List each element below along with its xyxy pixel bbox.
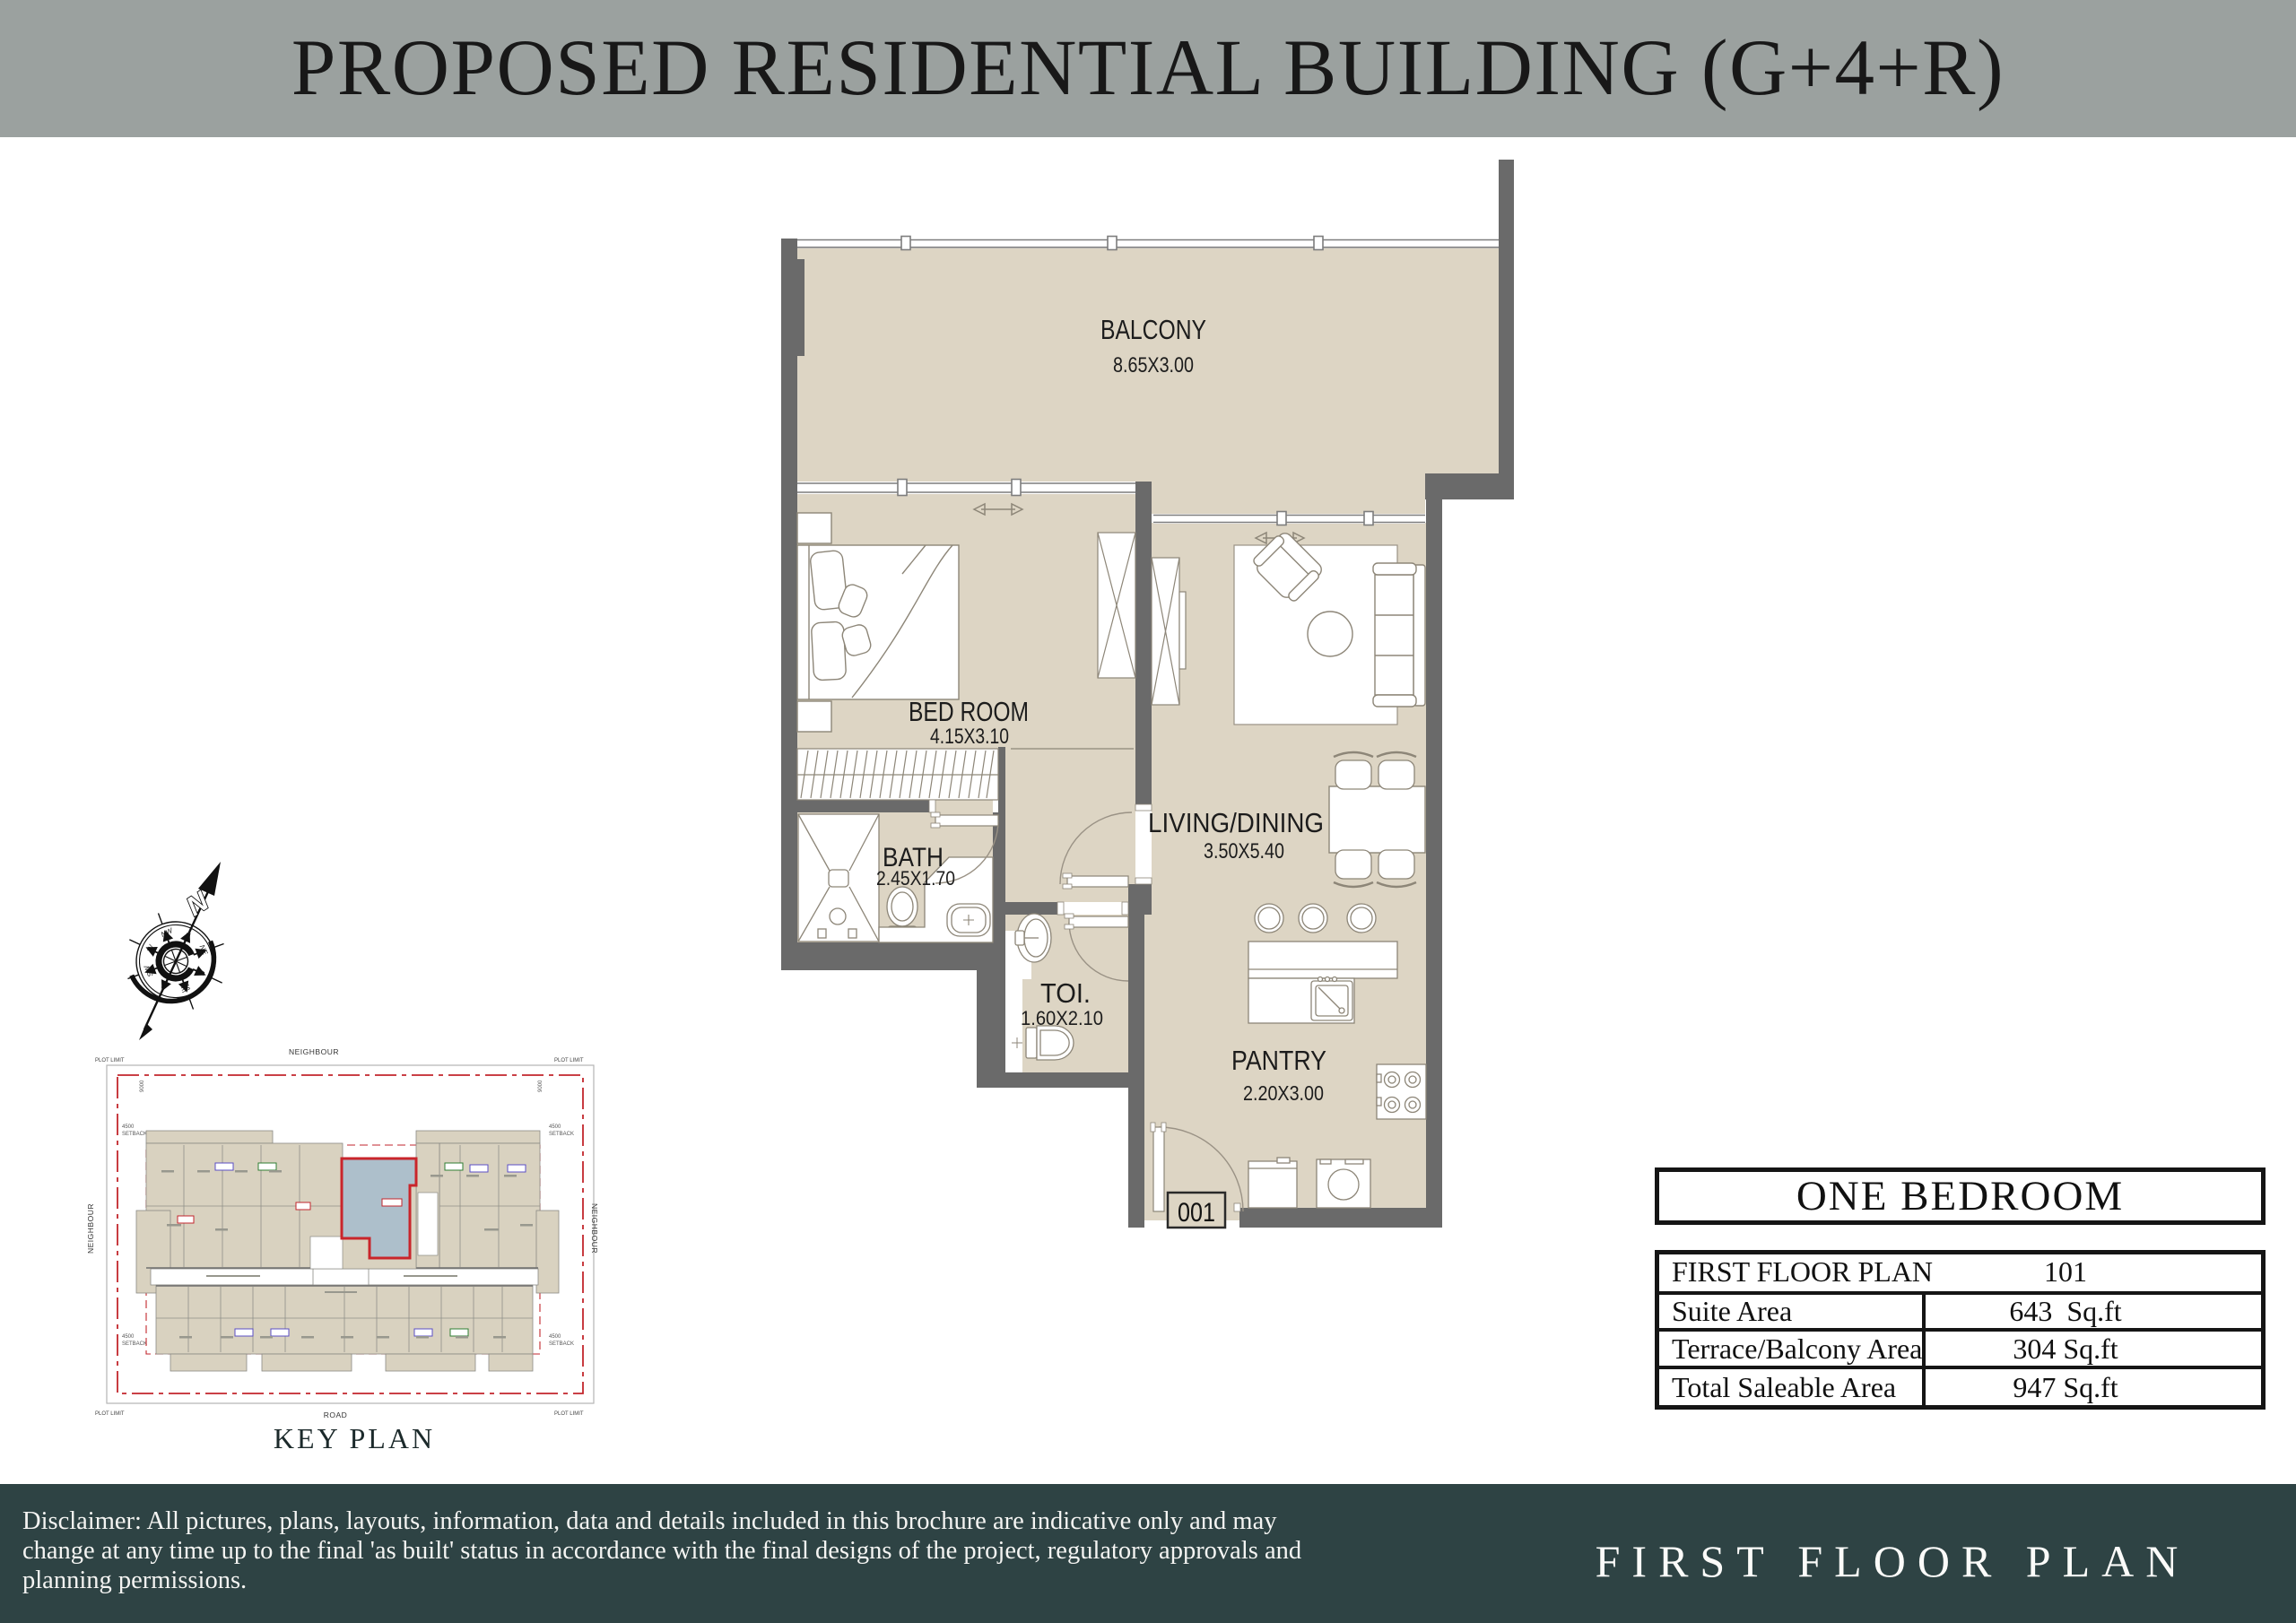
svg-text:4500: 4500 xyxy=(122,1124,135,1130)
svg-text:ROAD: ROAD xyxy=(324,1410,348,1419)
svg-text:4500: 4500 xyxy=(549,1334,561,1340)
svg-text:PLOT LIMIT: PLOT LIMIT xyxy=(95,1411,125,1417)
svg-text:TOI.: TOI. xyxy=(1040,977,1091,1009)
svg-text:PANTRY: PANTRY xyxy=(1231,1045,1326,1076)
svg-text:SETBACK: SETBACK xyxy=(549,1132,574,1137)
svg-text:NEIGHBOUR: NEIGHBOUR xyxy=(86,1203,95,1254)
svg-text:9000: 9000 xyxy=(538,1080,544,1092)
svg-text:NEIGHBOUR: NEIGHBOUR xyxy=(289,1047,339,1056)
svg-text:001: 001 xyxy=(1178,1198,1215,1228)
svg-text:8.65X3.00: 8.65X3.00 xyxy=(1113,353,1194,378)
svg-text:LIVING/DINING: LIVING/DINING xyxy=(1148,807,1324,838)
svg-text:9000: 9000 xyxy=(140,1080,145,1092)
svg-text:4500: 4500 xyxy=(122,1334,135,1340)
svg-text:PLOT LIMIT: PLOT LIMIT xyxy=(554,1411,584,1417)
svg-text:PLOT LIMIT: PLOT LIMIT xyxy=(554,1058,584,1063)
svg-text:SETBACK: SETBACK xyxy=(122,1132,147,1137)
svg-text:BED ROOM: BED ROOM xyxy=(909,696,1029,727)
svg-text:1.60X2.10: 1.60X2.10 xyxy=(1021,1007,1103,1029)
svg-text:PLOT LIMIT: PLOT LIMIT xyxy=(95,1058,125,1063)
svg-text:2.20X3.00: 2.20X3.00 xyxy=(1243,1081,1324,1105)
svg-text:4500: 4500 xyxy=(549,1124,561,1130)
svg-text:SETBACK: SETBACK xyxy=(122,1341,147,1347)
svg-text:3.50X5.40: 3.50X5.40 xyxy=(1204,839,1284,864)
svg-text:NEIGHBOUR: NEIGHBOUR xyxy=(590,1203,599,1254)
svg-text:4.15X3.10: 4.15X3.10 xyxy=(930,725,1009,749)
svg-text:BALCONY: BALCONY xyxy=(1100,314,1206,345)
svg-text:2.45X1.70: 2.45X1.70 xyxy=(876,867,955,890)
svg-text:SETBACK: SETBACK xyxy=(549,1341,574,1347)
